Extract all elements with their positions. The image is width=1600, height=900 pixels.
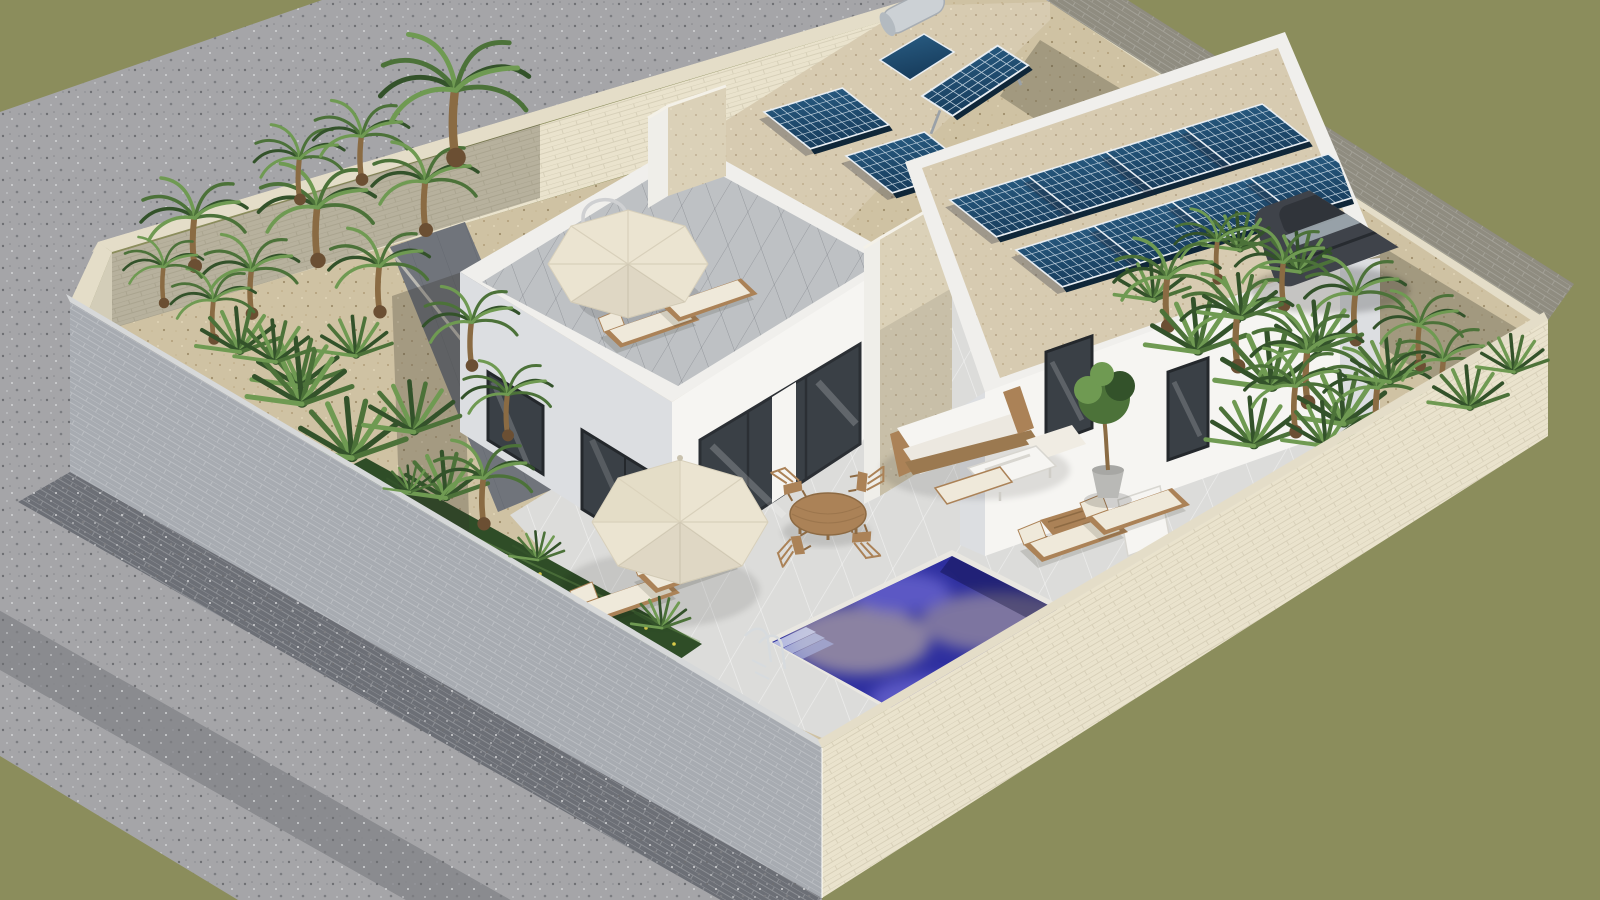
villa-3d-rendering: Aerial isometric photorealistic 3D rende…	[0, 0, 1600, 900]
umbrella-finial	[677, 455, 683, 461]
render-canvas: Aerial isometric photorealistic 3D rende…	[0, 0, 1600, 900]
window	[1168, 358, 1208, 460]
dining-table	[790, 493, 866, 540]
